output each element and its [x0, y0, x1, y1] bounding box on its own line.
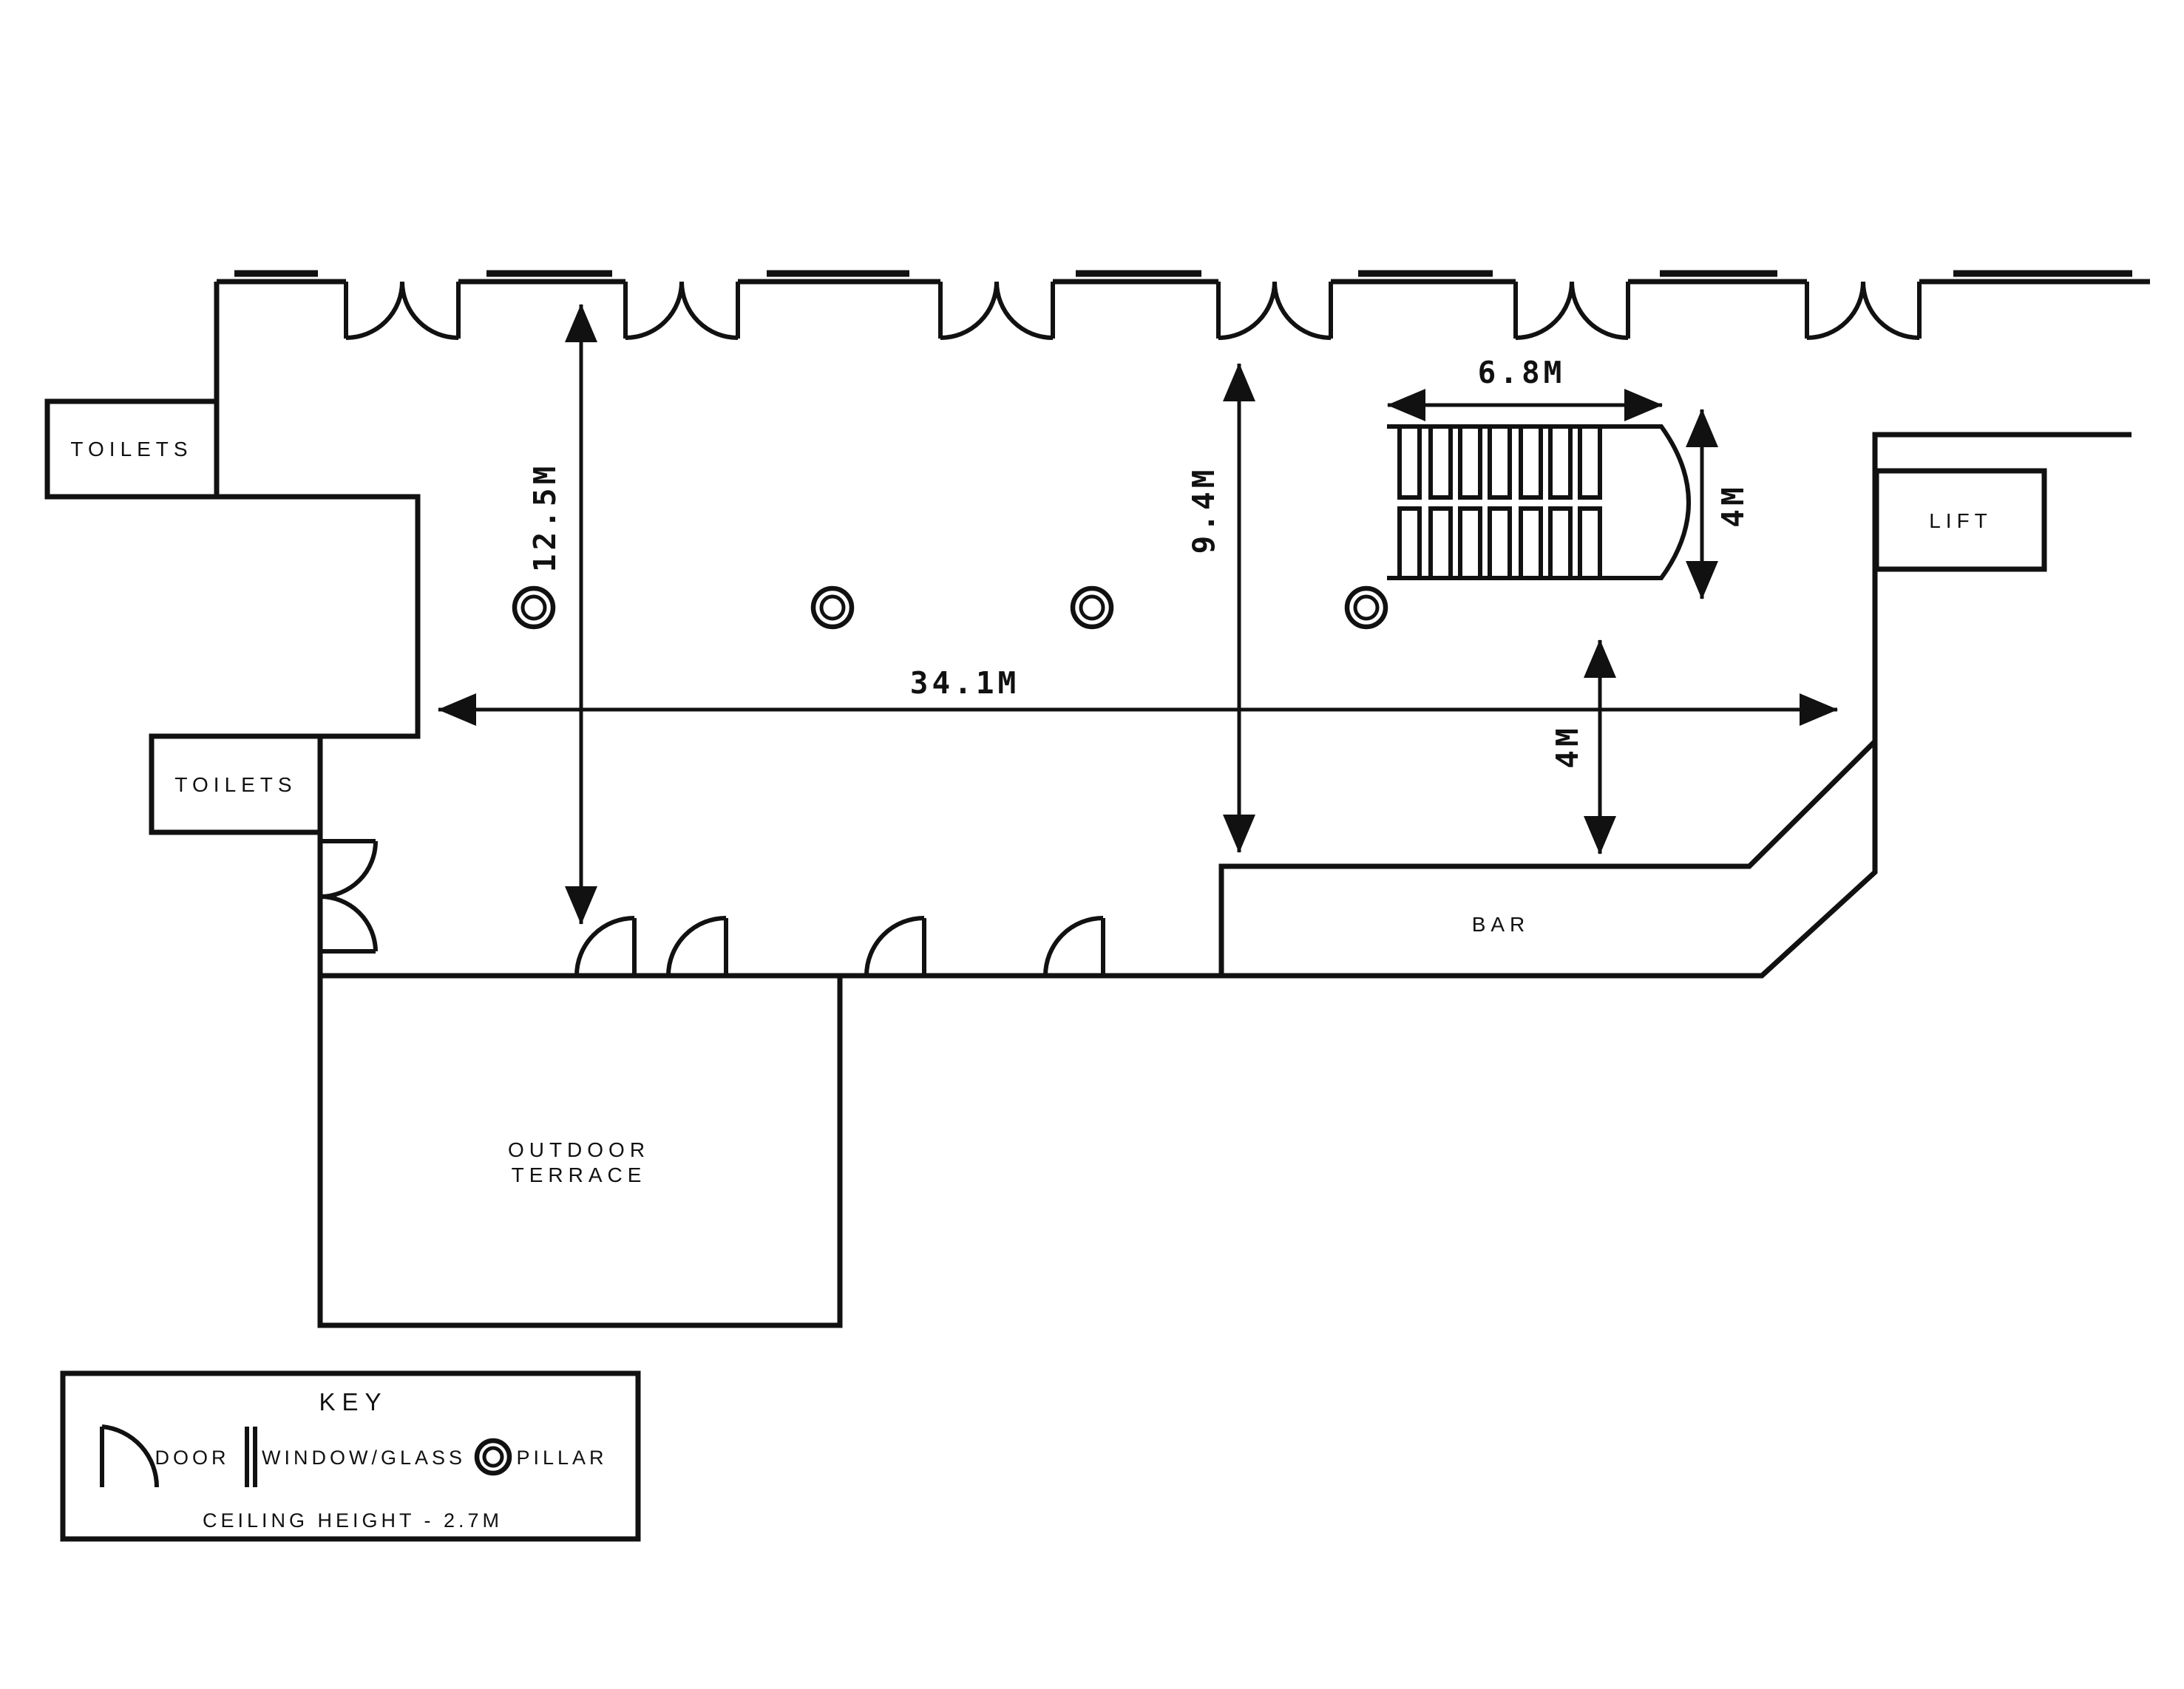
bar-counter: BAR	[1221, 741, 1875, 976]
dimension-hall-depth-label: 9.4M	[1186, 466, 1221, 554]
outdoor-terrace-room: OUTDOOR TERRACE	[320, 976, 840, 1325]
floor-plan-page: TOILETS TOILETS BAR OUTDOOR TERRACE LIFT	[0, 0, 2184, 1689]
left-wall-structure	[217, 282, 418, 976]
legend-door-label: DOOR	[155, 1447, 230, 1469]
stair-treads-lower-flight	[1400, 509, 1600, 578]
dimension-hall-length: 34.1M	[438, 665, 1837, 710]
dimension-stairs-length: 6.8M	[1388, 355, 1662, 405]
toilets-upper-label: TOILETS	[70, 438, 192, 461]
dimension-bar-gap-label: 4M	[1550, 724, 1585, 768]
staircase	[1387, 427, 1689, 578]
toilets-upper-room: TOILETS	[47, 401, 217, 497]
dimension-hall-length-label: 34.1M	[910, 665, 1020, 701]
legend-window-label: WINDOW/GLASS	[262, 1447, 466, 1469]
lift-room: LIFT	[1876, 471, 2044, 569]
stair-treads-upper-flight	[1400, 427, 1600, 497]
pillar-1	[515, 588, 553, 627]
dimension-hall-depth: 9.4M	[1186, 364, 1239, 852]
dimension-bar-gap: 4M	[1550, 640, 1600, 854]
bottom-wall	[320, 435, 2132, 976]
corridor-double-door	[320, 841, 376, 951]
pillar-4	[1347, 588, 1386, 627]
terrace-label-line1: OUTDOOR	[508, 1138, 650, 1161]
legend-pillar-label: PILLAR	[516, 1447, 607, 1469]
lift-label: LIFT	[1929, 509, 1993, 532]
floor-plan-canvas: TOILETS TOILETS BAR OUTDOOR TERRACE LIFT	[0, 0, 2184, 1689]
legend-ceiling-note: CEILING HEIGHT - 2.7M	[203, 1509, 503, 1532]
bottom-wall-doors	[577, 918, 1103, 976]
pillar-3	[1073, 588, 1111, 627]
toilets-lower-label: TOILETS	[174, 773, 296, 796]
legend: KEY DOOR WINDOW/GLASS PILLAR CEILING HEI…	[63, 1373, 638, 1539]
terrace-label-line2: TERRACE	[512, 1163, 647, 1186]
bar-label: BAR	[1472, 913, 1530, 936]
toilets-lower-room: TOILETS	[152, 736, 320, 832]
legend-title: KEY	[319, 1388, 387, 1416]
pillar-2	[813, 588, 852, 627]
dimension-stairs-length-label: 6.8M	[1478, 355, 1566, 390]
dimension-stairs-width-label: 4M	[1715, 483, 1751, 527]
dimension-hall-height-label: 12.5M	[527, 463, 563, 572]
dimension-stairs-width: 4M	[1702, 409, 1751, 599]
